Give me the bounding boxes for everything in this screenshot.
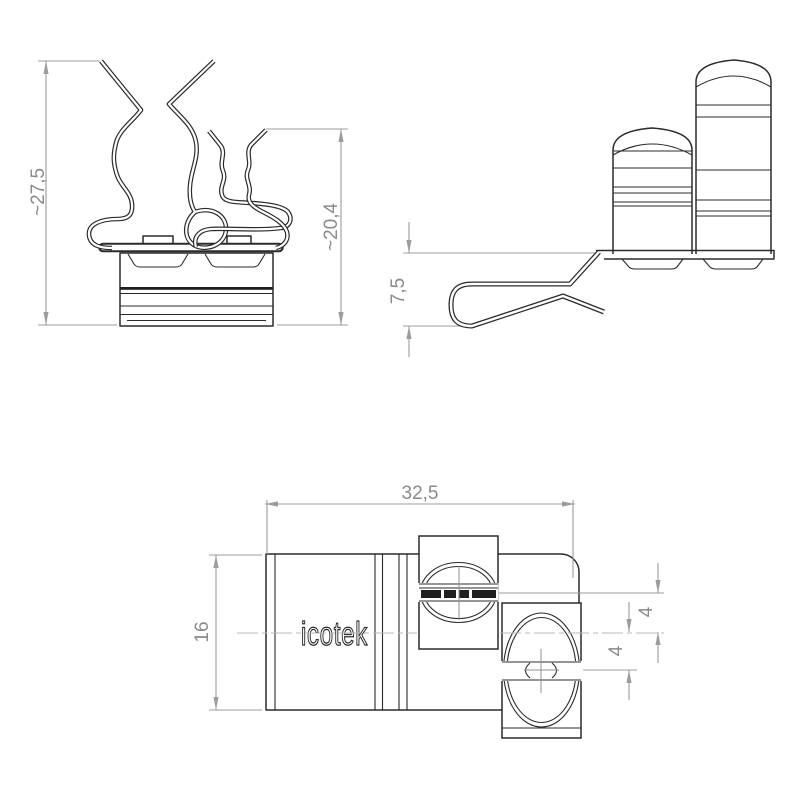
front-spring-wire-3-core [195,131,290,247]
top-view: icotek 32,5 16 4 [192,483,664,738]
top-offset-lower-arrows [626,619,631,683]
front-dimension-arrows [43,61,343,325]
side-base-plate [596,251,774,260]
side-mounting-leg-outer [451,252,604,326]
top-offset-upper-label: 4 [636,606,657,617]
technical-drawing-page: ~27,5 ~20,4 7,5 [0,0,800,800]
side-spring-tower-large [696,60,771,254]
side-spring-tower-large-lines [696,76,771,216]
side-foot-right [703,259,763,269]
front-extension-lines [38,61,348,325]
top-width-label: 32,5 [402,483,439,504]
side-foot-drop-label: 7,5 [388,278,409,304]
side-view: 7,5 [388,60,774,357]
side-mounting-leg-core [451,252,604,326]
drawing-canvas: ~27,5 ~20,4 7,5 [0,0,800,800]
front-body-seats [128,254,265,267]
side-foot-left [622,259,683,269]
front-view: ~27,5 ~20,4 [28,61,348,326]
side-spring-tower-small-lines [613,144,692,206]
front-body-bold-groove [120,287,273,290]
side-spring-tower-small [613,128,692,254]
front-body-lines [120,294,273,321]
front-total-height-label: ~27,5 [28,168,49,216]
front-spring-wire-2-outer [169,61,226,248]
front-dimension-lines [46,61,341,325]
top-offset-lower-label: 4 [606,645,627,656]
top-depth-label: 16 [192,621,213,642]
front-rear-height-label: ~20,4 [321,203,342,252]
front-spring-wire-1-core [89,61,141,248]
